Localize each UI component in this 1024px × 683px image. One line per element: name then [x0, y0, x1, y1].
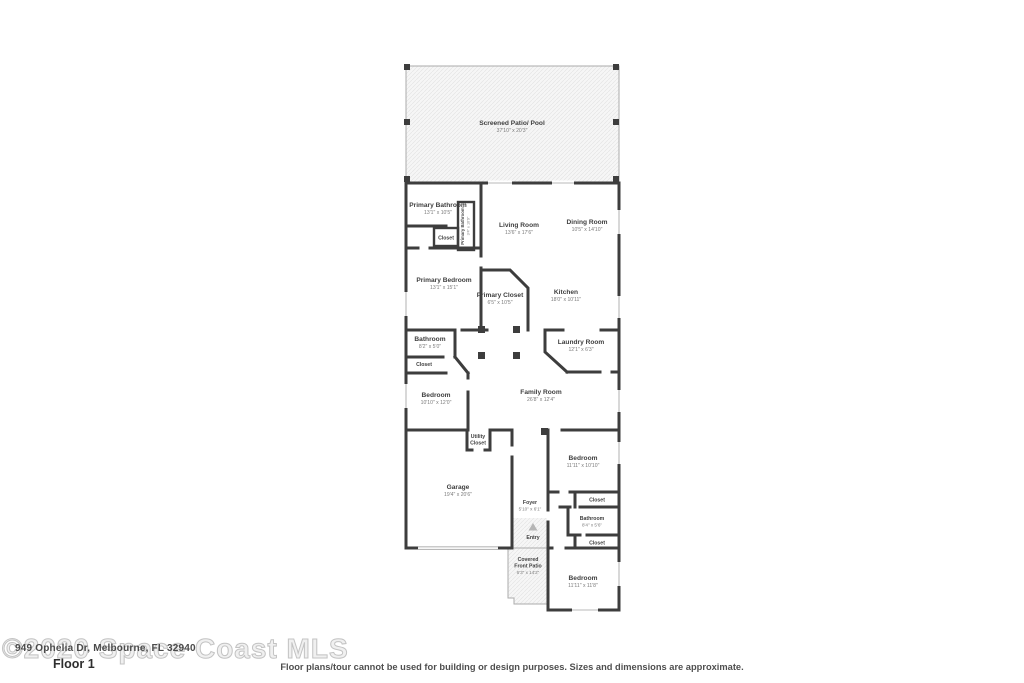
room-label-bedroom-2: Bedroom 11'11" x 10'10"	[567, 455, 600, 469]
svg-text:6'5" x 10'5": 6'5" x 10'5"	[487, 300, 512, 306]
svg-text:Primary Bedroom: Primary Bedroom	[416, 277, 471, 284]
room-label-bathroom-1: Bathroom 8'2" x 5'0"	[414, 336, 445, 350]
room-label-primary-bedroom: Primary Bedroom 13'1" x 15'1"	[416, 277, 471, 291]
svg-text:Primary Closet: Primary Closet	[477, 292, 524, 299]
room-label-primary-closet: Primary Closet 6'5" x 10'5"	[477, 292, 524, 306]
svg-text:3'4" x 10'9": 3'4" x 10'9"	[467, 216, 471, 235]
svg-text:6'3" x 14'2": 6'3" x 14'2"	[517, 570, 540, 575]
room-label-dining-room: Dining Room 10'5" x 14'10"	[566, 219, 607, 233]
svg-text:13'1" x 15'1": 13'1" x 15'1"	[430, 285, 458, 291]
room-label-kitchen: Kitchen 18'0" x 10'11"	[551, 289, 582, 303]
svg-text:Covered: Covered	[518, 557, 539, 563]
room-label-living-room: Living Room 13'6" x 17'6"	[499, 222, 539, 236]
svg-text:Closet: Closet	[416, 362, 432, 368]
svg-text:Utility: Utility	[471, 434, 486, 440]
svg-text:Family Room: Family Room	[520, 389, 562, 396]
disclaimer-text: Floor plans/tour cannot be used for buil…	[0, 662, 1024, 672]
svg-text:Bathroom: Bathroom	[580, 516, 605, 522]
svg-text:Primary Bathroom: Primary Bathroom	[460, 207, 465, 245]
svg-text:12'1" x 6'3": 12'1" x 6'3"	[568, 347, 593, 353]
svg-text:Closet: Closet	[438, 236, 454, 242]
svg-text:Closet: Closet	[470, 441, 486, 447]
address-text: 949 Ophelia Dr, Melbourne, FL 32940	[15, 643, 196, 654]
svg-text:8'4" x 5'6": 8'4" x 5'6"	[582, 523, 602, 528]
entry-area	[513, 518, 547, 548]
svg-text:Closet: Closet	[589, 541, 605, 547]
svg-text:19'4" x 20'6": 19'4" x 20'6"	[444, 492, 472, 498]
floor-plan: Screened Patio/ Pool 37'10" x 20'3" Prim…	[0, 0, 1024, 683]
svg-text:Closet: Closet	[589, 498, 605, 504]
room-label-closet-primary: Closet	[438, 236, 454, 242]
room-label-closet-2: Closet	[589, 498, 605, 504]
svg-text:Bathroom: Bathroom	[414, 336, 445, 343]
svg-text:Laundry Room: Laundry Room	[558, 339, 605, 346]
svg-text:Dining Room: Dining Room	[566, 219, 607, 226]
svg-text:13'1" x 10'5": 13'1" x 10'5"	[424, 210, 452, 216]
room-label-foyer: Foyer 5'10" x 6'1"	[519, 500, 542, 512]
wall-posts	[478, 326, 548, 435]
svg-text:Bedroom: Bedroom	[569, 575, 598, 582]
svg-text:5'10" x 6'1": 5'10" x 6'1"	[519, 507, 542, 512]
room-label-covered-front-patio: Covered Front Patio 6'3" x 14'2"	[514, 557, 541, 575]
svg-text:Front Patio: Front Patio	[514, 564, 541, 570]
room-label-closet-1: Closet	[416, 362, 432, 368]
room-label-utility-closet: Utility Closet	[470, 434, 486, 447]
svg-text:Screened Patio/ Pool: Screened Patio/ Pool	[479, 120, 545, 127]
svg-text:37'10" x 20'3": 37'10" x 20'3"	[497, 128, 528, 134]
svg-text:Kitchen: Kitchen	[554, 289, 578, 296]
svg-text:11'11" x 10'10": 11'11" x 10'10"	[567, 463, 600, 469]
svg-text:13'6" x 17'6": 13'6" x 17'6"	[505, 230, 533, 236]
svg-text:8'2" x 5'0": 8'2" x 5'0"	[419, 344, 441, 350]
svg-text:26'8" x 12'4": 26'8" x 12'4"	[527, 397, 555, 403]
room-label-primary-bath-wc: Primary Bathroom 3'4" x 10'9"	[460, 207, 471, 245]
svg-text:Primary Bathroom: Primary Bathroom	[409, 202, 467, 209]
svg-text:10'10" x 12'0": 10'10" x 12'0"	[421, 400, 452, 406]
room-label-bathroom-2: Bathroom 8'4" x 5'6"	[580, 516, 605, 528]
svg-text:10'5" x 14'10": 10'5" x 14'10"	[572, 227, 603, 233]
svg-text:Bedroom: Bedroom	[569, 455, 598, 462]
svg-text:11'11" x 11'8": 11'11" x 11'8"	[568, 583, 598, 589]
svg-text:Entry: Entry	[526, 535, 539, 541]
room-label-bedroom-3: Bedroom 11'11" x 11'8"	[568, 575, 598, 589]
room-label-family-room: Family Room 26'8" x 12'4"	[520, 389, 562, 403]
svg-text:18'0" x 10'11": 18'0" x 10'11"	[551, 297, 582, 303]
svg-text:Foyer: Foyer	[523, 500, 537, 506]
svg-text:Garage: Garage	[447, 484, 470, 491]
floor-plan-page: Screened Patio/ Pool 37'10" x 20'3" Prim…	[0, 0, 1024, 683]
room-label-garage: Garage 19'4" x 20'6"	[444, 484, 472, 498]
room-label-closet-3: Closet	[589, 541, 605, 547]
svg-text:Living Room: Living Room	[499, 222, 539, 229]
svg-text:Bedroom: Bedroom	[422, 392, 451, 399]
room-label-entry: Entry	[526, 535, 539, 541]
room-label-laundry-room: Laundry Room 12'1" x 6'3"	[558, 339, 605, 353]
room-label-bedroom-1: Bedroom 10'10" x 12'0"	[421, 392, 452, 406]
